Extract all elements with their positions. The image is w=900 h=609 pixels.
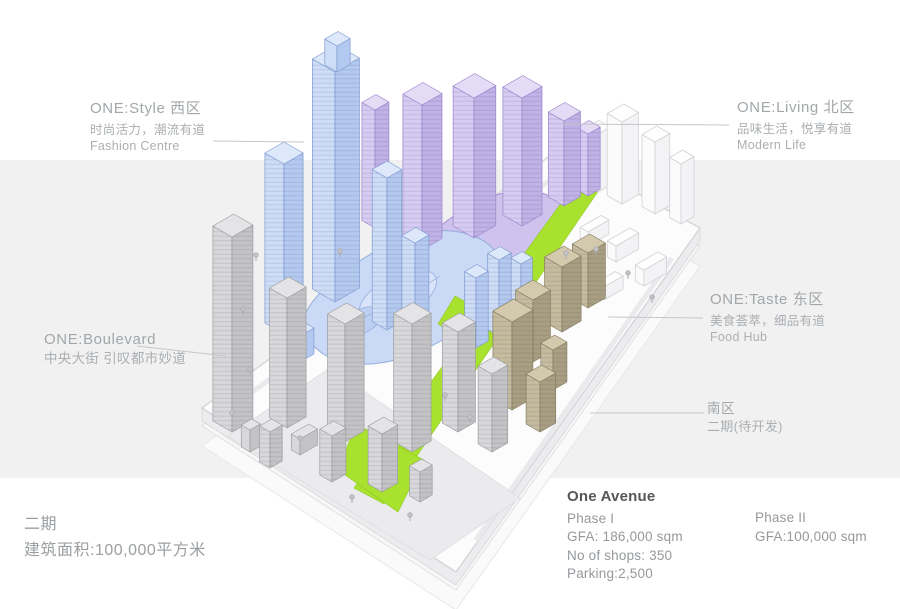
model-face	[622, 113, 639, 205]
district-subtitle-en: Food Hub	[710, 329, 825, 345]
phase2-gfa: GFA:100,000 sqm	[755, 527, 867, 546]
tree-icon	[564, 251, 569, 256]
model-face	[474, 86, 496, 239]
tree-icon	[248, 367, 253, 372]
district-subtitle-cn: 美食荟萃，细品有道	[710, 313, 825, 329]
district-title: ONE:Taste 东区	[710, 292, 825, 308]
phase1-parking: Parking:2,500	[567, 565, 683, 584]
model-face	[312, 59, 335, 302]
phase2-area-note: 二期 建筑面积:100,000平方米	[24, 512, 206, 564]
tree-icon	[254, 253, 259, 258]
district-title: 南区	[707, 401, 783, 417]
masterplan-diagram: ONE:Style 西区 时尚活力，潮流有道 Fashion Centre ON…	[0, 0, 900, 609]
model-face	[403, 94, 422, 250]
model-face	[345, 313, 364, 442]
phase2-name: Phase II	[755, 508, 867, 527]
model-face	[522, 87, 542, 227]
label-boulevard: ONE:Boulevard 中央大街 引叹都市妙道	[44, 332, 186, 367]
tree-icon	[468, 415, 473, 420]
model-face	[655, 134, 670, 215]
tree-icon	[350, 495, 355, 500]
model-face	[607, 114, 622, 205]
model-face	[492, 365, 508, 452]
model-face	[382, 425, 398, 492]
tree-icon	[594, 247, 599, 252]
model-face	[588, 243, 605, 308]
model-face	[442, 323, 458, 432]
model-face	[540, 373, 556, 432]
model-face	[588, 127, 600, 196]
model-face	[270, 425, 282, 468]
model-face	[332, 428, 346, 482]
district-subtitle-cn: 时尚活力，潮流有道	[90, 122, 205, 138]
tree-icon	[338, 249, 343, 254]
tree-icon	[241, 307, 246, 312]
district-title: ONE:Living 北区	[737, 100, 855, 116]
model-face	[412, 313, 431, 452]
tree-icon	[230, 411, 235, 416]
model-face	[503, 87, 522, 226]
project-stats-phase2: Phase II GFA:100,000 sqm	[755, 508, 867, 546]
model-face	[320, 429, 332, 482]
model-face	[476, 271, 488, 348]
model-face	[642, 135, 655, 215]
project-stats-phase1: One Avenue Phase I GFA: 186,000 sqm No o…	[567, 488, 683, 584]
model-face	[681, 157, 694, 225]
phase1-gfa: GFA: 186,000 sqm	[567, 528, 683, 547]
model-face	[453, 86, 474, 238]
tree-icon	[298, 436, 303, 441]
model-face	[335, 58, 359, 302]
model-face	[422, 94, 442, 251]
model-face	[526, 374, 540, 432]
model-face	[368, 426, 382, 492]
boulevard-title: ONE:Boulevard	[44, 332, 186, 348]
tree-icon	[408, 513, 413, 518]
phase1-shops: No of shops: 350	[567, 547, 683, 566]
district-title: ONE:Style 西区	[90, 101, 205, 117]
model-face	[260, 426, 270, 468]
leader-west-line	[213, 141, 304, 142]
model-face	[564, 112, 581, 207]
phase2-note-line1: 二期	[24, 512, 206, 538]
tree-icon	[650, 295, 655, 300]
label-east-district: ONE:Taste 东区 美食荟萃，细品有道 Food Hub	[710, 292, 825, 345]
model-face	[372, 170, 387, 331]
tree-icon	[443, 393, 448, 398]
model-face	[213, 226, 232, 432]
district-subtitle-en: Fashion Centre	[90, 138, 205, 154]
model-face	[270, 288, 287, 428]
model-face	[458, 322, 475, 432]
label-west-district: ONE:Style 西区 时尚活力，潮流有道 Fashion Centre	[90, 101, 205, 154]
boulevard-subtitle-cn: 中央大街 引叹都市妙道	[44, 351, 186, 367]
model-face	[562, 256, 581, 332]
district-subtitle-en: Modern Life	[737, 137, 855, 153]
phase2-note-line2: 建筑面积:100,000平方米	[24, 538, 206, 564]
project-title: One Avenue	[567, 488, 683, 507]
label-north-district: ONE:Living 北区 品味生活，悦享有道 Modern Life	[737, 100, 855, 153]
model-face	[387, 170, 402, 331]
phase1-name: Phase I	[567, 510, 683, 529]
model-face	[478, 366, 492, 452]
model-face	[548, 112, 564, 206]
label-south-district: 南区 二期(待开发)	[707, 401, 783, 435]
model-face	[232, 225, 253, 432]
model-face	[287, 287, 306, 428]
district-subtitle-cn: 品味生活，悦享有道	[737, 121, 855, 137]
district-subtitle-cn: 二期(待开发)	[707, 419, 783, 435]
tree-icon	[626, 271, 631, 276]
model-face	[670, 158, 681, 225]
